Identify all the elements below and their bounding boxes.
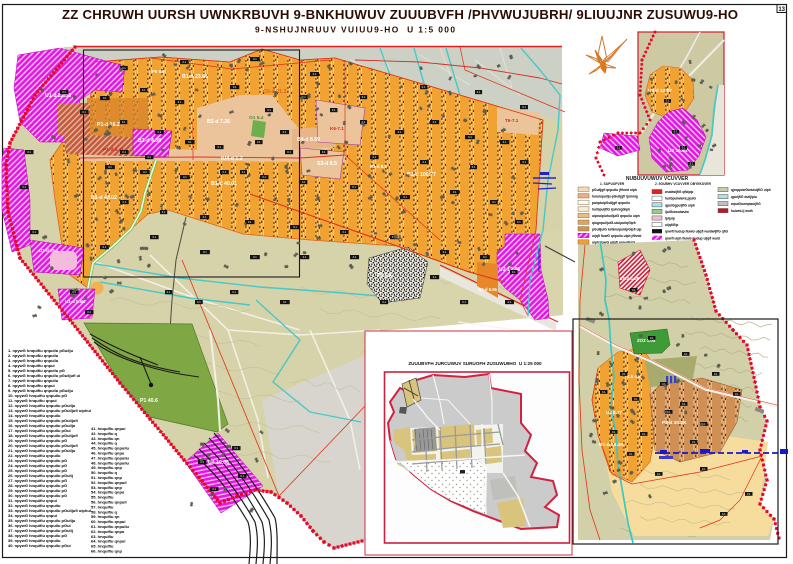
svg-text:0.1: 0.1 (342, 230, 346, 234)
svg-text:0.1: 0.1 (629, 452, 633, 456)
svg-text:uipnuipiuhuiljuiG qnpuilu uiph: uipnuipiuhuiljuiG qnpuilu uiph (592, 214, 640, 218)
svg-text:9-NSHUJNRUUV VUIUU9-HO U 1:5: 9-NSHUJNRUUV VUIUU9-HO U 1:5 000 (255, 25, 455, 35)
svg-text:0.1: 0.1 (382, 300, 386, 304)
svg-text:uijqfi fiuwG qnpuilu uiph jfih: uijqfi fiuwG qnpuilu uiph jfihnid (592, 234, 641, 238)
svg-text:P1 40.6: P1 40.6 (140, 398, 158, 404)
svg-text:U1-d 12.07: U1-d 12.07 (648, 88, 672, 94)
svg-text:0.1: 0.1 (443, 250, 447, 254)
svg-text:0.1: 0.1 (462, 300, 466, 304)
svg-text:0.1: 0.1 (188, 140, 192, 144)
svg-text:0.1: 0.1 (722, 512, 726, 516)
svg-text:pGuiljgfi qnpuilu jfihnid uiph: pGuiljgfi qnpuilu jfihnid uiph (592, 188, 637, 192)
svg-text:0.1: 0.1 (617, 146, 621, 150)
svg-text:0.1: 0.1 (634, 397, 638, 401)
svg-text:0.1: 0.1 (123, 200, 127, 204)
svg-text:0.1: 0.1 (87, 310, 91, 314)
svg-text:0.1: 0.1 (423, 160, 427, 164)
svg-text:B1-d 47.02: B1-d 47.02 (91, 195, 117, 201)
svg-text:0.1: 0.1 (684, 352, 688, 356)
svg-text:B1-d 100.77: B1-d 100.77 (407, 172, 436, 178)
svg-text:0.1: 0.1 (257, 140, 261, 144)
svg-text:0.1: 0.1 (682, 146, 686, 150)
svg-text:0.1: 0.1 (223, 170, 227, 174)
svg-text:O1 5.4: O1 5.4 (249, 115, 264, 121)
svg-text:0.1: 0.1 (283, 300, 287, 304)
svg-text:0.1: 0.1 (362, 95, 366, 99)
svg-text:0.1: 0.1 (217, 145, 221, 149)
svg-text:S3-d 8.5: S3-d 8.5 (317, 161, 337, 167)
svg-text:0.1: 0.1 (735, 392, 739, 396)
svg-text:1. SUPUOFVER: 1. SUPUOFVER (600, 182, 625, 186)
svg-text:0.1: 0.1 (422, 85, 426, 89)
svg-text:puiqduipGuiljgfi qnpuilu: puiqduipGuiljgfi qnpuilu (592, 201, 630, 205)
svg-text:wpuiGuwnpwuijfiG: wpuiGuwnpwuijfiG (730, 202, 761, 206)
svg-text:0.1: 0.1 (248, 220, 252, 224)
svg-text:0.1: 0.1 (702, 467, 706, 471)
svg-text:0.1: 0.1 (142, 88, 146, 92)
svg-text:B2-d 7.26: B2-d 7.26 (207, 119, 230, 125)
svg-text:O3-d 6.56: O3-d 6.56 (478, 287, 498, 292)
svg-text:L5 4.K: L5 4.K (628, 374, 642, 379)
svg-text:0.1: 0.1 (714, 372, 718, 376)
svg-text:0.1: 0.1 (602, 390, 606, 394)
svg-text:0.1: 0.1 (468, 135, 472, 139)
svg-text:0.1: 0.1 (108, 165, 112, 169)
svg-text:0.1: 0.1 (122, 150, 126, 154)
svg-text:0.1: 0.1 (293, 225, 297, 229)
svg-text:U1-d 25.1: U1-d 25.1 (39, 248, 59, 253)
svg-text:40. npywG hnquifiu qnpuilu pGu: 40. npywG hnquifiu qnpuilu pGui (8, 543, 71, 548)
svg-text:P1 6.K: P1 6.K (377, 273, 393, 279)
svg-text:uijqfiGip: uijqfiGip (665, 223, 678, 227)
svg-text:T6-7.1: T6-7.1 (505, 118, 519, 123)
svg-text:0.1: 0.1 (353, 255, 357, 259)
svg-text:qpuijfiG duiljipiu: qpuijfiG duiljipiu (731, 195, 757, 199)
svg-text:ZUUUBVFH JURCUWUV SURUOFH ZUSU: ZUUUBVFH JURCUWUV SURUOFH ZUSUWU9HO U 1:… (408, 361, 542, 366)
svg-text:0.1: 0.1 (650, 336, 654, 340)
svg-text:0.1: 0.1 (398, 130, 402, 134)
svg-text:0.1: 0.1 (267, 108, 271, 112)
svg-text:0.1: 0.1 (197, 300, 201, 304)
svg-text:0.1: 0.1 (103, 96, 107, 100)
svg-text:0.1: 0.1 (167, 290, 171, 294)
svg-text:0.1: 0.1 (632, 288, 636, 292)
svg-text:0.1: 0.1 (303, 255, 307, 259)
svg-text:0.1: 0.1 (253, 255, 257, 259)
svg-text:0.1: 0.1 (508, 300, 512, 304)
svg-text:0.1: 0.1 (122, 120, 126, 124)
svg-text:0.1: 0.1 (322, 150, 326, 154)
svg-text:huiGpuijfiG ljuinnigGiph: huiGpuijfiG ljuinnigGiph (592, 208, 630, 212)
svg-text:0.1: 0.1 (453, 190, 457, 194)
svg-text:U4 3.77: U4 3.77 (606, 410, 623, 415)
svg-text:ZZ CHRUWH UURSH UWNKRBUVH 9-BN: ZZ CHRUWH UURSH UWNKRBUVH 9-BNKHUWUV ZUU… (62, 7, 738, 22)
svg-text:0.1: 0.1 (22, 185, 26, 189)
svg-text:0.1: 0.1 (492, 200, 496, 204)
svg-text:B1-d 40.01: B1-d 40.01 (211, 181, 237, 187)
svg-text:0.1: 0.1 (152, 235, 156, 239)
svg-text:Ipljuip: Ipljuip (665, 217, 675, 221)
svg-text:qnwfi hudup fiuwG uijqfi wuidw: qnwfi hudup fiuwG uijqfi wuidwijfiG qfid (665, 230, 728, 234)
svg-text:0.1: 0.1 (332, 108, 336, 112)
svg-text:B1-d 23.66: B1-d 23.66 (182, 74, 208, 80)
svg-text:huiGpuiwiwnLpjuiG: huiGpuiwiwnLpjuiG (665, 197, 696, 201)
svg-text:0.1: 0.1 (433, 275, 437, 279)
svg-text:0.1: 0.1 (212, 487, 216, 491)
svg-text:0.1: 0.1 (612, 430, 616, 434)
svg-text:0.1: 0.1 (372, 155, 376, 159)
svg-text:K6-7.1: K6-7.1 (330, 126, 344, 131)
svg-text:0.1: 0.1 (483, 255, 487, 259)
svg-text:0.1: 0.1 (287, 150, 291, 154)
svg-text:0.1: 0.1 (747, 492, 751, 496)
svg-text:0.1: 0.1 (143, 170, 147, 174)
svg-text:0.1: 0.1 (302, 180, 306, 184)
svg-text:66. hnquifiu qnp: 66. hnquifiu qnp (91, 549, 122, 554)
svg-text:P6 8.5: P6 8.5 (152, 69, 165, 74)
svg-text:wuidwijfiG qfidpip: wuidwijfiG qfidpip (664, 190, 693, 194)
svg-text:qiugnpuiljuiG-uiuipuilqGipfi: qiugnpuiljuiG-uiuipuilqGipfi (592, 221, 636, 225)
svg-text:0.1: 0.1 (62, 90, 66, 94)
svg-text:0.1: 0.1 (674, 130, 678, 134)
svg-text:0.1: 0.1 (666, 99, 670, 103)
svg-text:P3-d 8.5: P3-d 8.5 (370, 164, 387, 169)
svg-text:0.1: 0.1 (692, 440, 696, 444)
svg-text:0.1: 0.1 (657, 472, 661, 476)
svg-text:ljuiGuiwuiwuiw: ljuiGuiwuiwuiw (665, 210, 689, 214)
svg-text:0.1: 0.1 (622, 372, 626, 376)
svg-text:0.1: 0.1 (522, 105, 526, 109)
svg-text:0.1: 0.1 (178, 100, 182, 104)
svg-text:pGuiljuiG luiGnuipuidpGipfi ui: pGuiljuiG luiGnuipuidpGipfi uip (592, 227, 641, 231)
svg-text:0.1: 0.1 (403, 195, 407, 199)
svg-text:0.1: 0.1 (522, 160, 526, 164)
svg-text:ZO2 4.08: ZO2 4.08 (620, 276, 640, 281)
svg-text:0.1: 0.1 (240, 474, 244, 478)
svg-text:B4-d 8.69: B4-d 8.69 (297, 137, 320, 143)
svg-text:0.1: 0.1 (147, 155, 151, 159)
svg-text:U1-d 5.5K: U1-d 5.5K (65, 299, 86, 304)
svg-text:0.1: 0.1 (313, 72, 317, 76)
svg-text:0.1: 0.1 (283, 130, 287, 134)
svg-text:qnwfi uiph fiuwG hudup uijqfi: qnwfi uiph fiuwG hudup uijqfi wuid (665, 236, 720, 240)
svg-text:B1-d 26.4K: B1-d 26.4K (599, 442, 624, 448)
svg-text:2. 9OUBHV VCUVVER OBYEKSVER: 2. 9OUBHV VCUVVER OBYEKSVER (655, 182, 711, 186)
svg-text:0.1: 0.1 (262, 175, 266, 179)
svg-text:0.1: 0.1 (242, 170, 246, 174)
svg-text:qjnqquiwGwiuiuijfiG uiph: qjnqquiwGwiuiuijfiG uiph (731, 188, 771, 192)
svg-text:0.1: 0.1 (233, 85, 237, 89)
svg-text:0.1: 0.1 (253, 57, 257, 61)
svg-text:0.1: 0.1 (503, 140, 507, 144)
svg-text:IU4-d 1.2: IU4-d 1.2 (221, 156, 243, 162)
svg-text:0.1: 0.1 (472, 165, 476, 169)
svg-text:0.1: 0.1 (642, 432, 646, 436)
svg-text:0.1: 0.1 (517, 220, 521, 224)
svg-text:13: 13 (778, 7, 785, 13)
svg-text:0.1: 0.1 (27, 150, 31, 154)
svg-text:0.1: 0.1 (232, 290, 236, 294)
svg-text:U4 10.06: U4 10.06 (208, 460, 229, 466)
svg-text:0.1: 0.1 (82, 110, 86, 114)
svg-text:0.1: 0.1 (433, 120, 437, 124)
svg-text:0.1: 0.1 (352, 185, 356, 189)
svg-text:0.1: 0.1 (183, 175, 187, 179)
svg-text:0.1: 0.1 (103, 245, 107, 249)
svg-text:0.1: 0.1 (162, 210, 166, 214)
svg-text:0.1: 0.1 (203, 215, 207, 219)
svg-text:0.1: 0.1 (512, 270, 516, 274)
svg-text:0.1: 0.1 (234, 446, 238, 450)
svg-text:0.1: 0.1 (182, 60, 186, 64)
svg-text:P2-d 30.2K: P2-d 30.2K (662, 420, 687, 426)
svg-text:huiwnLlj wuih: huiwnLlj wuih (731, 209, 753, 213)
svg-text:0.1: 0.1 (477, 90, 481, 94)
svg-text:0.1: 0.1 (32, 230, 36, 234)
svg-text:B1-d 4.38: B1-d 4.38 (138, 138, 161, 144)
svg-text:0.1: 0.1 (682, 402, 686, 406)
svg-text:qpuiGgpuijfiG uiph: qpuiGgpuijfiG uiph (665, 203, 695, 207)
svg-text:0.1: 0.1 (667, 410, 671, 414)
svg-text:0.1: 0.1 (158, 130, 162, 134)
svg-text:huiuiupuilju-pGuiljgfi ljuinni: huiuiupuilju-pGuiljgfi ljuinnig (592, 194, 638, 198)
svg-text:0.1: 0.1 (203, 250, 207, 254)
